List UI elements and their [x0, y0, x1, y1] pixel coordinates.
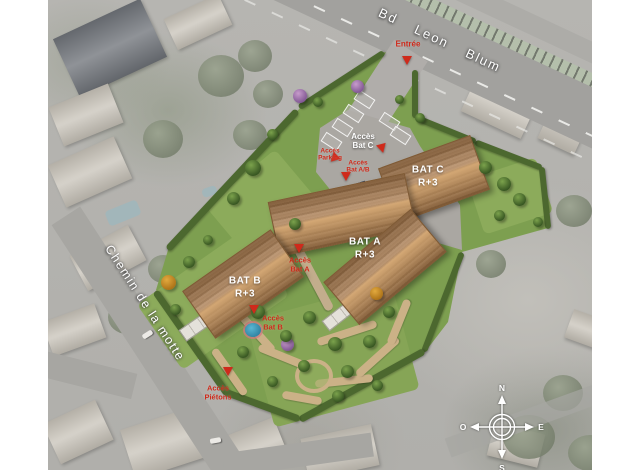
building-level: R+3 [349, 249, 381, 262]
compass-west-label: O [460, 422, 467, 432]
access-bat-ab-label: Accès Bat A/B [346, 160, 369, 175]
tree [227, 192, 240, 205]
tree [143, 120, 183, 158]
building-name: BAT B [229, 276, 261, 289]
building-label-bat-a: BAT A R+3 [349, 237, 381, 262]
flowering-tree [293, 89, 307, 103]
building-level: R+3 [229, 288, 261, 301]
tree [568, 435, 592, 470]
house [564, 309, 592, 351]
tree [203, 235, 213, 245]
tree [280, 330, 292, 342]
building-label-bat-b: BAT B R+3 [229, 276, 261, 301]
tree [363, 335, 376, 348]
tree [415, 113, 425, 123]
access-bat-b-label: Accès Bat B [262, 314, 284, 331]
access-bat-c-label: Accès Bat C [351, 132, 375, 150]
building-name: BAT C [412, 165, 444, 178]
hedge [412, 70, 418, 118]
tree [513, 193, 526, 206]
entrance-label: Entrée [396, 39, 421, 48]
pond [245, 323, 261, 337]
orange-tree [370, 287, 383, 300]
entrance-marker-icon [402, 56, 412, 65]
tree [267, 376, 278, 387]
tree [328, 337, 342, 351]
tree [383, 306, 395, 318]
tree [267, 129, 278, 140]
tree [170, 304, 181, 315]
tree [494, 210, 505, 221]
tree [313, 97, 323, 107]
tree [245, 160, 261, 176]
house [48, 136, 132, 207]
tree [198, 55, 244, 97]
access-bat-a-label: Accès Bat A [289, 256, 311, 273]
access-pietons-marker-icon [223, 367, 233, 376]
building-label-bat-c: BAT C R+3 [412, 165, 444, 190]
tree [238, 40, 272, 72]
tree [372, 380, 383, 391]
access-parking-label: Accès Parking [318, 148, 342, 163]
building-name: BAT A [349, 237, 381, 250]
tree [253, 80, 283, 108]
tree [556, 195, 592, 227]
house [48, 400, 114, 464]
tree [303, 311, 316, 324]
tree [497, 177, 511, 191]
building-level: R+3 [412, 177, 444, 190]
tree [476, 250, 506, 278]
access-bat-b-marker-icon [249, 305, 259, 314]
tree [533, 217, 543, 227]
tree [298, 360, 310, 372]
tree [289, 218, 301, 230]
tree [237, 346, 249, 358]
house [53, 0, 167, 97]
compass-east-label: E [538, 422, 544, 432]
tree [395, 95, 404, 104]
compass-south-label: S [499, 463, 505, 470]
swimming-pool [104, 199, 142, 227]
access-bat-a-marker-icon [294, 244, 304, 253]
compass-rose: N S O E [458, 382, 546, 470]
tree [479, 161, 492, 174]
screenshot-canvas: Bd Leon Blum Chemin de la motte Entrée A… [0, 0, 640, 470]
tree [183, 256, 195, 268]
aerial-photo: Bd Leon Blum Chemin de la motte Entrée A… [48, 0, 592, 470]
tree [332, 390, 344, 402]
house [48, 304, 106, 357]
compass-north-label: N [499, 383, 505, 393]
flowering-tree [351, 80, 364, 93]
house [164, 0, 233, 50]
tree [341, 365, 354, 378]
access-pietons-label: Accès Piétons [204, 384, 231, 401]
orange-tree [161, 275, 176, 290]
